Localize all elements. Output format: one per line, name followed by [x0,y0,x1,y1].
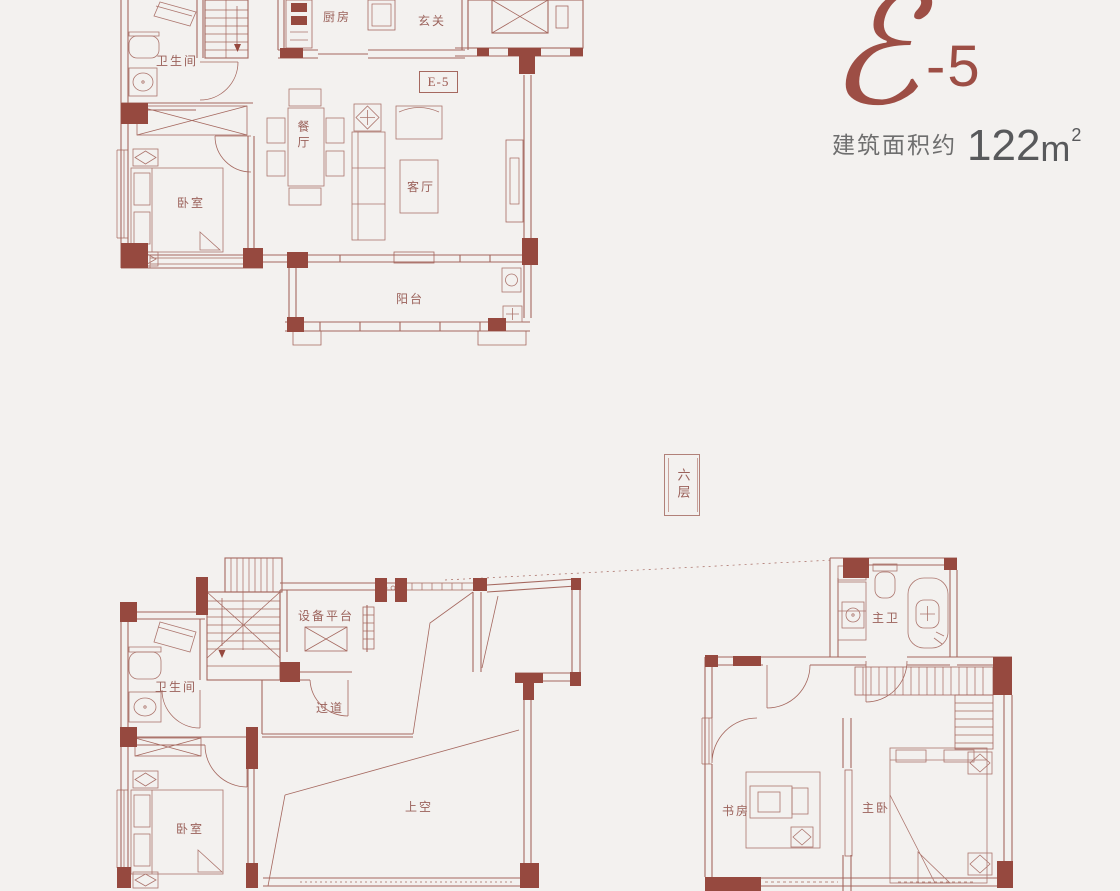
lower-right-wall-columns [705,558,1013,891]
room-label-lower-bedroom: 卧室 [176,823,204,835]
area-unit: m [1040,132,1070,166]
lower-right-walls [702,558,1012,891]
room-label-living: 客厅 [407,181,435,193]
room-label-entry: 玄关 [418,15,446,27]
lower-right-floor-plan [702,558,1013,891]
toilet-icon [129,647,161,679]
bathtub-icon [908,578,948,648]
lower-left-furniture [129,622,223,888]
logo-suffix: -5 [926,38,982,96]
floor-badge-label: 六层 [668,458,698,512]
room-label-study: 书房 [722,805,750,817]
logo-script-e: ℰ [828,0,920,118]
bed [131,168,223,252]
lower-left-floor-plan [117,558,581,888]
stair-arrow-icon [219,650,226,658]
area-text: 建筑面积约 122 m 2 [832,126,1081,166]
room-label-equipment-platform: 设备平台 [298,610,354,622]
area-exponent: 2 [1071,125,1081,146]
room-label-master-bath: 主卫 [872,612,900,624]
ceiling-lamp-icon [354,104,381,131]
room-label-lower-bathroom: 卫生间 [155,681,197,693]
area-value: 122 [967,126,1040,166]
stove-icon [290,32,308,40]
lower-left-walls [117,558,580,888]
armchair [396,106,442,139]
room-label-corridor: 过道 [316,702,344,714]
washer-icon [502,268,521,292]
sink-icon [129,68,157,96]
room-label-upper-bathroom: 卫生间 [156,55,198,67]
toilet-icon [873,564,897,598]
floor-badge: 六层 [664,454,700,516]
unit-badge-e5: E-5 [419,71,458,93]
unit-logo: ℰ -5 [828,0,982,118]
sink-icon [842,602,864,628]
room-label-master-bedroom: 主卧 [862,802,890,814]
room-label-void: 上空 [405,801,433,813]
bed [890,748,987,883]
upper-floor-plan [117,0,583,345]
stair-arrow-icon [234,44,241,52]
shower-icon [154,622,196,652]
area-label: 建筑面积约 [832,126,957,160]
room-label-dining: 餐厅 [297,120,309,152]
room-label-balcony: 阳台 [396,293,424,305]
sofa [352,132,385,240]
nightstand-icon [968,752,992,875]
desk [746,772,820,848]
room-label-kitchen: 厨房 [323,11,351,23]
floor-connector-dotted-line [445,560,833,580]
sink-icon [129,692,161,722]
nightstand-icon [133,771,158,888]
toilet-icon [129,32,159,58]
floorplan-page: ℰ -5 建筑面积约 122 m 2 E-5 六层 卫生间 厨房 玄关 餐厅 客… [0,0,1120,891]
shower-icon [154,2,196,26]
room-label-upper-bedroom: 卧室 [177,197,205,209]
